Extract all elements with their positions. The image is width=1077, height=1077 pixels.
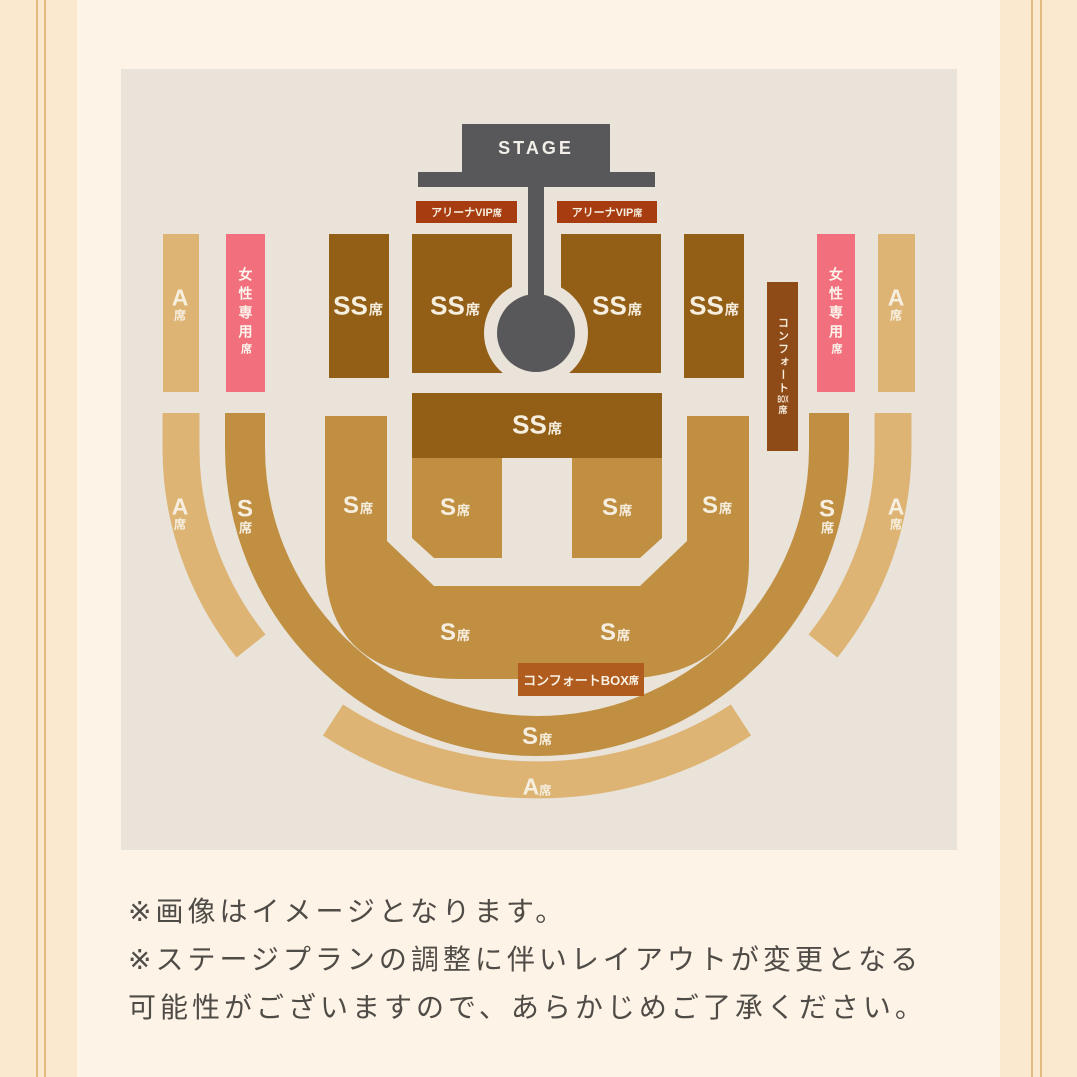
seat-map: STAGE アリーナVIP席 アリーナVIP席 女性専用席 女性専用席 コンフォ… (121, 69, 957, 850)
seat-label-ss: SS席 (333, 291, 383, 322)
seat-label-ss: SS席 (592, 291, 642, 322)
left-pinstripe-outer (36, 0, 38, 1077)
note-line: ※ステージプランの調整に伴いレイアウトが変更となる (128, 936, 958, 984)
seat-label-a: A席 (172, 286, 189, 323)
seat-strip-women-only-right: 女性専用席 (817, 234, 855, 392)
seat-label-a: A席 (888, 495, 905, 532)
seat-label-s: S席 (237, 497, 253, 536)
seat-label-s: S席 (343, 492, 373, 520)
seat-label-ss: SS席 (430, 291, 480, 322)
arena-vip-text: アリーナVIP (572, 204, 634, 220)
seat-label-s: S席 (522, 723, 552, 751)
seat-label-s: S席 (819, 497, 835, 536)
seat-label-a: A席 (888, 286, 905, 323)
seat-label-s: S席 (602, 494, 632, 522)
seat-label-arena-vip-left: アリーナVIP席 (416, 201, 517, 223)
seat-label-s: S席 (702, 492, 732, 520)
seat-label-a: A席 (172, 495, 189, 532)
arena-vip-suffix: 席 (633, 206, 642, 219)
comfort-box-text: コンフォートBOX (523, 670, 629, 689)
stage: STAGE (462, 124, 610, 172)
seat-label-ss: SS席 (689, 291, 739, 322)
stage-apron (418, 172, 655, 187)
arena-vip-text: アリーナVIP (431, 204, 493, 220)
women-only-label: 女性専用席 (236, 267, 256, 359)
seat-label-s: S席 (440, 619, 470, 647)
women-only-label: 女性専用席 (826, 267, 846, 359)
seat-label-comfort-box: コンフォートBOX席 (518, 663, 644, 696)
round-platform (497, 294, 575, 372)
right-pinstripe-inner (1031, 0, 1033, 1077)
right-border-band (1000, 0, 1077, 1077)
disclaimer-notes: ※画像はイメージとなります。 ※ステージプランの調整に伴いレイアウトが変更となる… (128, 888, 958, 1032)
note-line: ※画像はイメージとなります。 (128, 888, 958, 936)
comfort-box-strip-label: コンフォートBOX席 (775, 317, 791, 416)
seat-strip-comfort-box: コンフォートBOX席 (767, 282, 798, 451)
seat-label-s: S席 (600, 619, 630, 647)
arena-vip-suffix: 席 (493, 206, 502, 219)
seat-label-a: A席 (523, 774, 552, 801)
comfort-box-suffix: 席 (629, 672, 639, 687)
note-line: 可能性がございますので、あらかじめご了承ください。 (128, 984, 958, 1032)
stage-label: STAGE (498, 138, 574, 159)
seat-label-arena-vip-right: アリーナVIP席 (557, 201, 657, 223)
seat-label-s: S席 (440, 494, 470, 522)
left-pinstripe-inner (44, 0, 46, 1077)
left-border-band (0, 0, 77, 1077)
right-pinstripe-outer (1040, 0, 1042, 1077)
page: { "stage": { "label": "STAGE" }, "seats"… (0, 0, 1077, 1077)
seat-strip-women-only-left: 女性専用席 (226, 234, 265, 392)
seat-label-ss: SS席 (512, 410, 562, 441)
